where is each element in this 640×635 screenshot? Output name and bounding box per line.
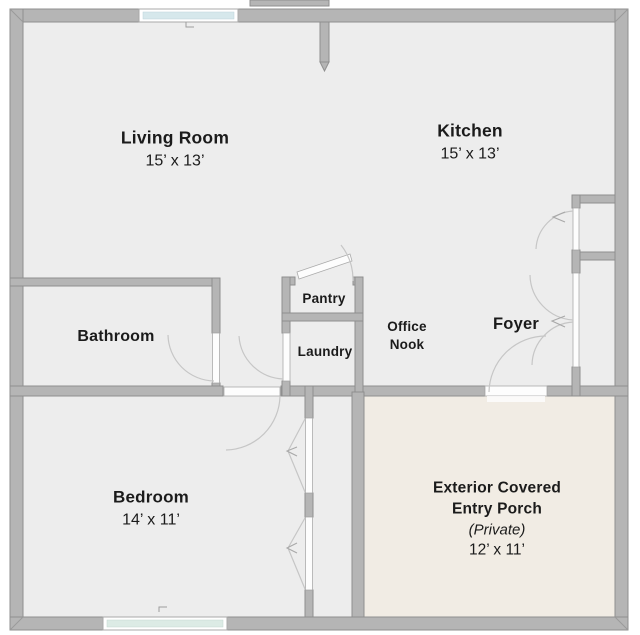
porch-floor	[358, 392, 622, 624]
bedroom-closet-bifold-opening-1	[306, 418, 313, 493]
living-room-window-glass	[143, 12, 234, 19]
bedroom-door	[224, 387, 280, 396]
entry-door	[485, 386, 547, 396]
closet-front-wall-seg1	[572, 195, 580, 208]
bedroom-right-wall-seg2	[305, 493, 313, 517]
bedroom-window-glass	[107, 620, 223, 627]
foyer-bottom-wall-right	[547, 386, 628, 396]
bedroom-right-wall-seg3	[305, 590, 313, 617]
bathroom-door	[213, 333, 220, 383]
exterior-wall-right	[615, 9, 628, 630]
pantry-laundry-divider-wall	[282, 313, 363, 321]
exterior-wall-left	[10, 9, 23, 630]
floor-plan: Living Room 15’ x 13’ Kitchen 15’ x 13’ …	[0, 0, 640, 635]
foyer-closet-door	[573, 273, 579, 367]
bedroom-closet-bifold-opening-2	[306, 517, 313, 590]
exterior-wall-top	[10, 9, 628, 22]
bathroom-top-wall	[10, 278, 220, 286]
living-kitchen-divider-wall	[320, 22, 329, 62]
closet-front-wall-seg3	[572, 367, 580, 396]
pantry-laundry-left-wall-lower	[282, 381, 290, 396]
adjacent-wall-fragment	[250, 0, 329, 6]
entry-door-threshold	[487, 396, 545, 402]
hall-bottom-wall-left	[10, 386, 223, 396]
closet-front-wall-seg2	[572, 250, 580, 273]
pantry-laundry-right-wall	[355, 277, 363, 396]
floor-plan-drawing	[0, 0, 640, 635]
kitchen-closet-door	[573, 208, 579, 250]
bathroom-right-wall-upper	[212, 278, 220, 333]
bedroom-right-wall-seg1	[305, 386, 313, 418]
porch-left-wall	[352, 392, 364, 617]
laundry-door	[283, 333, 290, 381]
pantry-laundry-left-wall-upper	[282, 277, 290, 333]
